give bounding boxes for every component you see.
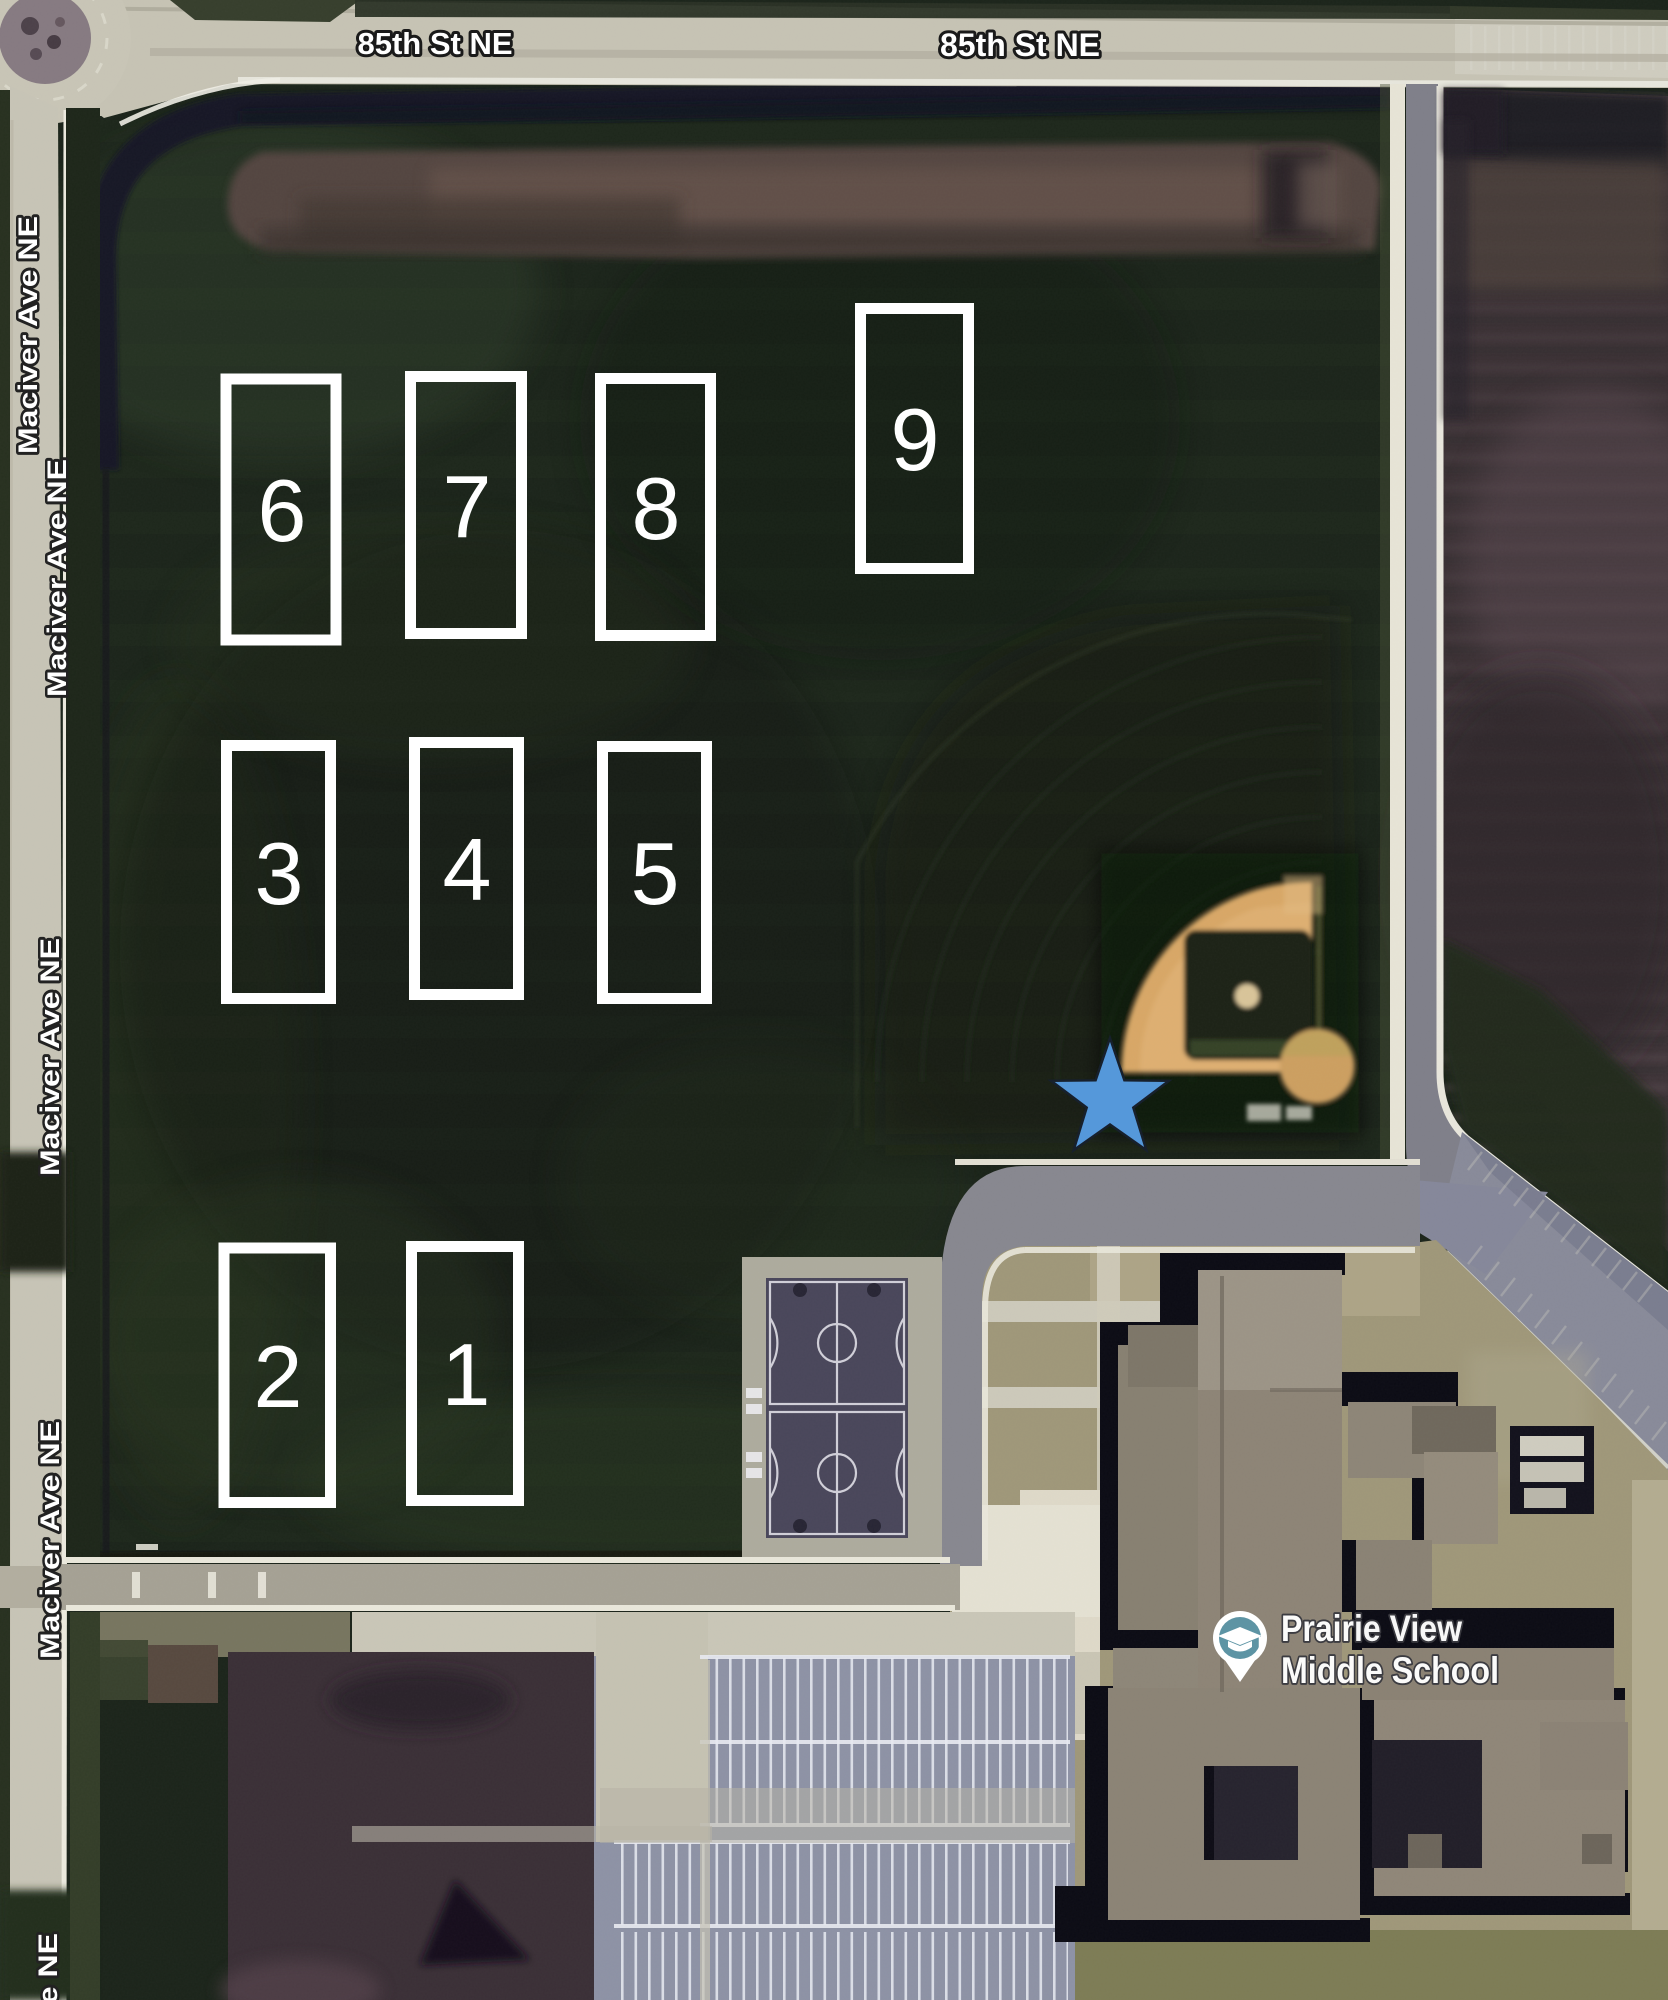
svg-text:8: 8 xyxy=(632,459,681,558)
svg-text:Maciver Ave NE: Maciver Ave NE xyxy=(13,216,43,454)
svg-text:5: 5 xyxy=(631,824,680,923)
svg-text:Middle School: Middle School xyxy=(1281,1650,1499,1691)
svg-text:Prairie View: Prairie View xyxy=(1281,1608,1462,1649)
svg-text:3: 3 xyxy=(255,824,304,923)
svg-text:2: 2 xyxy=(254,1327,303,1426)
svg-text:7: 7 xyxy=(443,457,492,556)
svg-text:85th St NE: 85th St NE xyxy=(940,27,1100,63)
svg-text:4: 4 xyxy=(443,820,492,919)
svg-text:85th St NE: 85th St NE xyxy=(357,26,512,61)
svg-text:Maciver Ave NE: Maciver Ave NE xyxy=(35,1421,65,1659)
svg-text:9: 9 xyxy=(891,390,940,489)
svg-text:1: 1 xyxy=(442,1325,491,1424)
svg-text:Maciver Ave NE: Maciver Ave NE xyxy=(42,459,72,697)
svg-text:Maciver Ave NE: Maciver Ave NE xyxy=(35,938,65,1176)
svg-text:6: 6 xyxy=(258,461,307,560)
svg-text:Maciver Ave NE: Maciver Ave NE xyxy=(33,1933,63,2000)
